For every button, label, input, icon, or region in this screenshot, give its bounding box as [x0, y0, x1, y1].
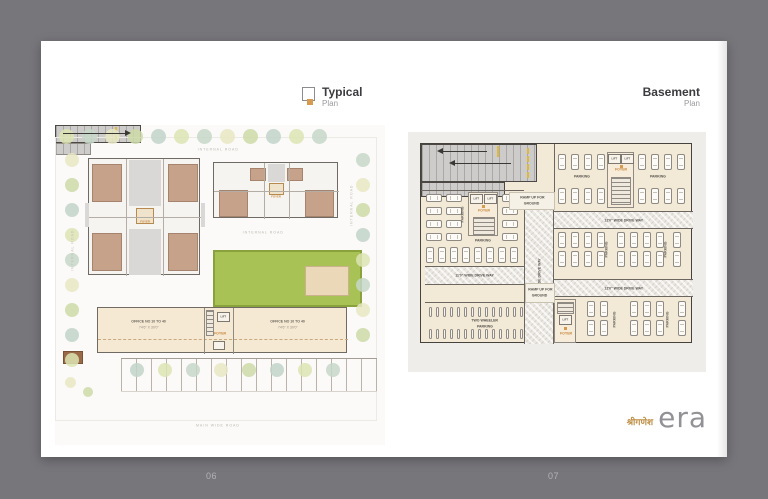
road-label-bottom: MAIN WIDE ROAD — [158, 421, 278, 431]
driveway-12-lower: 12'0" WIDE DRIVE WAY — [554, 279, 693, 297]
stair-core — [129, 229, 161, 275]
two-wheeler-icon — [520, 329, 523, 339]
right-page-number: 07 — [548, 471, 559, 481]
car-icon — [426, 220, 442, 228]
tree-icon — [65, 278, 79, 292]
tree-icon — [186, 363, 200, 377]
car-icon — [446, 233, 462, 241]
two-wheeler-icon — [513, 329, 516, 339]
car-icon — [638, 154, 646, 170]
tree-icon — [151, 129, 166, 144]
car-icon — [630, 251, 638, 267]
driveway-11: 11'0" WIDE DRIVE WAY — [425, 266, 524, 285]
stair-core — [268, 164, 285, 182]
car-icon — [643, 251, 651, 267]
tree-icon — [65, 303, 79, 317]
car-icon — [673, 232, 681, 248]
tree-icon — [130, 363, 144, 377]
bedroom — [305, 190, 334, 217]
left-page: Typical Plan INTERNAL ROAD INTERNAL ROAD… — [41, 41, 384, 457]
car-icon — [651, 188, 659, 204]
car-icon — [638, 188, 646, 204]
two-wheeler-icon — [471, 329, 474, 339]
car-icon — [656, 301, 664, 317]
building-1-floorplan: FOYER — [88, 158, 200, 275]
two-wheeler-icon — [513, 307, 516, 317]
bedroom — [168, 164, 198, 202]
car-icon — [617, 232, 625, 248]
two-wheeler-icon — [464, 307, 467, 317]
lift-core-2: LIFT LIFT FOYER — [607, 152, 634, 208]
car-icon — [426, 194, 442, 202]
two-wheeler-icon — [478, 307, 481, 317]
foyer-label: FOYER — [469, 207, 499, 215]
utility-box — [213, 341, 225, 350]
parking-label: PARKING — [662, 234, 670, 264]
driveway-12-upper: 12'0" WIDE DRIVE WAY — [554, 211, 693, 229]
car-icon — [677, 188, 685, 204]
lift: LIFT — [217, 312, 230, 322]
lawn — [213, 250, 362, 307]
car-icon — [502, 194, 518, 202]
balcony — [85, 203, 89, 227]
parking-label: PARKING — [468, 237, 498, 245]
right-page: Basement Plan RAMP UP FOR — [384, 41, 727, 457]
tree-icon — [158, 363, 172, 377]
car-icon — [664, 154, 672, 170]
typical-site-plan: INTERNAL ROAD INTERNAL ROAD INTERNAL ROA… — [55, 125, 385, 445]
brand-devanagari-text: श्रीगणेश — [627, 415, 653, 428]
right-page-title: Basement — [600, 86, 700, 99]
car-icon — [643, 301, 651, 317]
driveway-vertical: 11'0" WIDE DRIVE WAY — [524, 210, 554, 344]
car-icon — [584, 154, 592, 170]
car-icon — [502, 233, 518, 241]
parking-label: PARKING — [603, 234, 611, 264]
parking-label: PARKING — [643, 173, 673, 181]
car-icon — [597, 154, 605, 170]
tree-icon — [356, 278, 370, 292]
tree-icon — [65, 203, 79, 217]
two-wheeler-icon — [436, 329, 439, 339]
office-block: OFFICE NO 10 TO 40 74'6" X 30'0" OFFICE … — [97, 307, 347, 353]
two-wheeler-icon — [443, 329, 446, 339]
car-icon — [426, 247, 434, 263]
parking-label: PARKING — [611, 304, 619, 334]
two-wheeler-icon — [471, 307, 474, 317]
lift: LIFT — [470, 194, 483, 204]
tree-icon — [356, 153, 370, 167]
car-icon — [600, 320, 608, 336]
office-right-label: OFFICE NO 10 TO 40 74'6" X 30'0" — [244, 314, 332, 336]
lift-lobby — [269, 183, 284, 195]
bedroom — [92, 233, 122, 271]
tree-icon — [174, 129, 189, 144]
tree-icon — [356, 178, 370, 192]
tree-icon — [243, 129, 258, 144]
tree-icon — [242, 363, 256, 377]
staircase — [473, 217, 495, 235]
tree-icon — [356, 303, 370, 317]
two-wheeler-icon — [499, 329, 502, 339]
two-wheeler-icon — [443, 307, 446, 317]
car-icon — [673, 251, 681, 267]
two-wheeler-icon — [485, 307, 488, 317]
two-wheeler-icon — [485, 329, 488, 339]
lift-core-3: LIFT FOYER — [554, 299, 576, 343]
left-page-title: Typical — [322, 86, 362, 99]
two-wheeler-icon — [464, 329, 467, 339]
car-icon — [571, 232, 579, 248]
car-icon — [677, 154, 685, 170]
tree-icon — [266, 129, 281, 144]
car-icon — [426, 207, 442, 215]
car-icon — [643, 320, 651, 336]
tree-icon — [105, 129, 120, 144]
car-icon — [558, 232, 566, 248]
ramp-arrow-icon — [455, 163, 511, 164]
two-wheeler-icon — [436, 307, 439, 317]
brand-logo: श्रीगणेश era — [541, 401, 707, 435]
two-wheeler-icon — [506, 307, 509, 317]
tree-icon — [59, 129, 74, 144]
car-icon — [502, 220, 518, 228]
staircase — [206, 310, 214, 336]
office-core: LIFT FOYER — [204, 308, 234, 354]
car-icon — [558, 188, 566, 204]
stair-core — [129, 160, 161, 206]
car-icon — [630, 320, 638, 336]
tree-icon — [214, 363, 228, 377]
car-icon — [584, 232, 592, 248]
typical-plan-title-block: Typical Plan — [302, 86, 382, 114]
brand-era-wordmark: era — [658, 404, 707, 432]
foyer-label: FOYER — [555, 330, 577, 338]
lift-lobby — [136, 208, 154, 224]
basement-plan-title-block: Basement Plan — [600, 86, 700, 114]
car-icon — [558, 154, 566, 170]
left-page-subtitle: Plan — [322, 99, 362, 109]
car-icon — [510, 247, 518, 263]
car-icon — [450, 247, 458, 263]
bedroom — [92, 164, 122, 202]
bedroom — [168, 233, 198, 271]
tree-icon — [289, 129, 304, 144]
parking-label: PARKING — [567, 173, 597, 181]
basement-panel: RAMP UP FOR GROUND 11'0" WIDE DRIVE WAY … — [408, 132, 706, 372]
ramp-arrow-icon — [63, 133, 125, 134]
two-wheeler-icon — [429, 307, 432, 317]
lawn-pavilion — [305, 266, 349, 296]
car-icon — [643, 232, 651, 248]
basement-plan-drawing: RAMP UP FOR GROUND 11'0" WIDE DRIVE WAY … — [420, 143, 692, 343]
lift: LIFT — [559, 315, 572, 325]
tree-icon — [356, 228, 370, 242]
building-2-floorplan: FOYER — [213, 162, 338, 218]
tree-icon — [83, 387, 93, 397]
car-icon — [597, 188, 605, 204]
car-icon — [498, 247, 506, 263]
car-icon — [571, 251, 579, 267]
two-wheeler-icon — [492, 307, 495, 317]
ramp-arrow-icon — [443, 151, 487, 152]
car-icon — [486, 247, 494, 263]
car-icon — [584, 188, 592, 204]
car-icon — [678, 320, 686, 336]
two-wheeler-icon — [429, 329, 432, 339]
two-wheeler-icon — [506, 329, 509, 339]
tree-icon — [65, 228, 79, 242]
two-wheeler-icon — [492, 329, 495, 339]
car-icon — [678, 301, 686, 317]
staircase — [557, 302, 574, 314]
car-icon — [600, 301, 608, 317]
lift: LIFT — [621, 154, 634, 164]
tree-icon — [65, 153, 79, 167]
car-icon — [438, 247, 446, 263]
two-wheeler-icon — [450, 307, 453, 317]
car-icon — [617, 251, 625, 267]
office-left-label: OFFICE NO 10 TO 40 74'6" X 30'0" — [108, 314, 190, 336]
lift-core-1: LIFT LIFT FOYER — [468, 192, 498, 236]
car-icon — [664, 188, 672, 204]
car-icon — [558, 251, 566, 267]
brochure-background: Typical Plan INTERNAL ROAD INTERNAL ROAD… — [0, 0, 768, 499]
tree-icon — [220, 129, 235, 144]
tree-icon — [65, 377, 76, 388]
two-wheeler-icon — [499, 307, 502, 317]
car-icon — [651, 154, 659, 170]
brochure-spread: Typical Plan INTERNAL ROAD INTERNAL ROAD… — [41, 41, 727, 457]
bedroom — [219, 190, 248, 217]
typical-plan-icon — [302, 87, 315, 101]
tree-icon — [65, 353, 79, 367]
tree-icon — [356, 328, 370, 342]
car-icon — [571, 154, 579, 170]
tree-icon — [270, 363, 284, 377]
car-icon — [584, 251, 592, 267]
two-wheeler-icon — [478, 329, 481, 339]
right-page-subtitle: Plan — [600, 99, 700, 109]
tree-icon — [356, 203, 370, 217]
left-page-number: 06 — [206, 471, 217, 481]
two-wheeler-icon — [520, 307, 523, 317]
two-wheeler-icon — [457, 329, 460, 339]
car-icon — [571, 188, 579, 204]
tree-icon — [298, 363, 312, 377]
tree-icon — [65, 328, 79, 342]
foyer-label: FOYER — [264, 195, 289, 200]
tree-icon — [65, 178, 79, 192]
two-wheeler-icon — [457, 307, 460, 317]
lift: LIFT — [484, 194, 497, 204]
car-icon — [426, 233, 442, 241]
balcony — [201, 203, 205, 227]
car-icon — [474, 247, 482, 263]
car-icon — [462, 247, 470, 263]
parking-label: PARKING — [459, 199, 467, 229]
tree-icon — [312, 129, 327, 144]
car-icon — [630, 301, 638, 317]
two-wheeler-icon — [450, 329, 453, 339]
parking-label: PARKING — [664, 304, 672, 334]
staircase — [611, 177, 631, 205]
tree-icon — [326, 363, 340, 377]
car-icon — [587, 320, 595, 336]
car-icon — [630, 232, 638, 248]
car-icon — [502, 207, 518, 215]
tree-icon — [65, 253, 79, 267]
car-icon — [656, 320, 664, 336]
orange-square-icon — [307, 99, 313, 105]
tree-icon — [82, 129, 97, 144]
car-icon — [587, 301, 595, 317]
tree-icon — [356, 253, 370, 267]
tree-icon — [197, 129, 212, 144]
lift: LIFT — [608, 154, 621, 164]
